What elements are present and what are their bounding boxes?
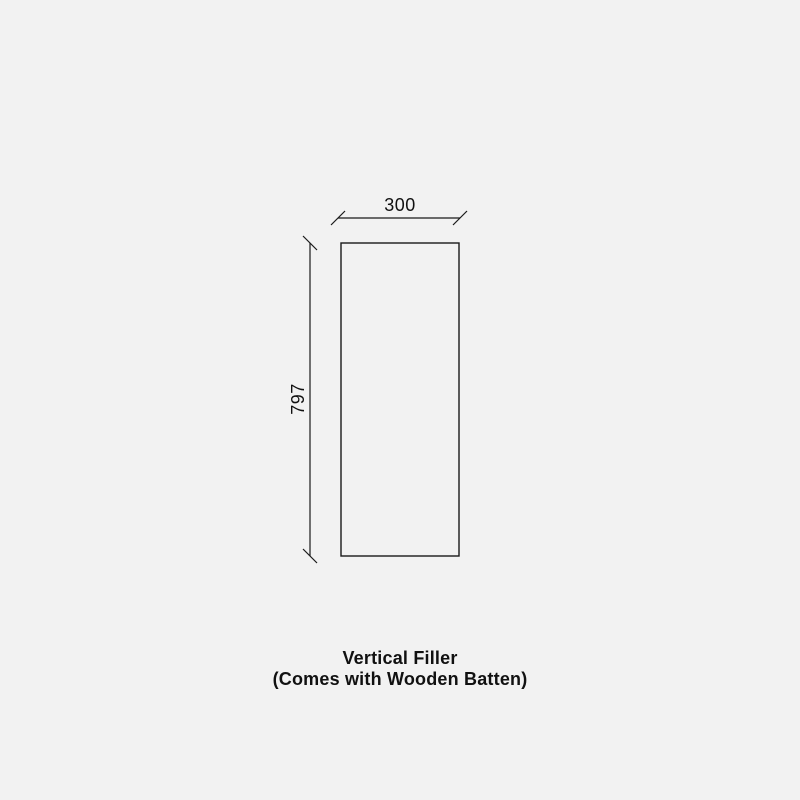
caption-line-1: Vertical Filler [0, 648, 800, 669]
diagram-canvas: 300 797 Vertical Filler (Comes with Wood… [0, 0, 800, 800]
width-dimension: 300 [331, 195, 467, 225]
height-dimension: 797 [288, 236, 317, 563]
width-dimension-label: 300 [384, 195, 416, 215]
filler-panel-outline [341, 243, 459, 556]
caption-line-2: (Comes with Wooden Batten) [0, 669, 800, 690]
height-dimension-label: 797 [288, 383, 308, 415]
caption: Vertical Filler (Comes with Wooden Batte… [0, 648, 800, 690]
